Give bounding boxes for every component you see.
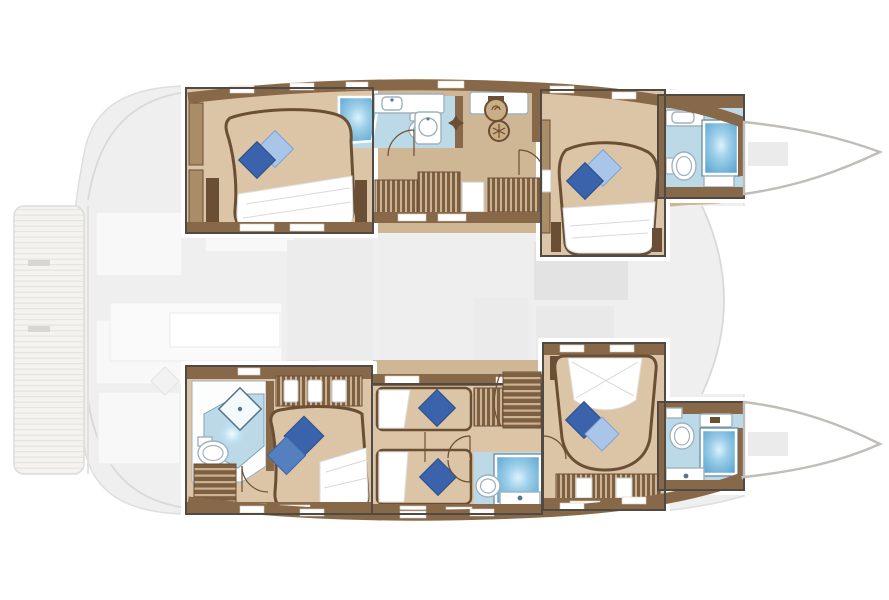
port-mid-bathroom	[337, 94, 463, 156]
hull-window	[610, 345, 634, 352]
wardrobe-panel	[189, 103, 203, 165]
shower	[704, 122, 738, 174]
nightstand	[551, 222, 561, 252]
galley-sink	[419, 118, 437, 136]
hull-window	[385, 376, 419, 384]
nightstand	[652, 228, 662, 252]
hanger	[332, 380, 346, 402]
anchor-locker-ghost	[748, 142, 788, 166]
faucet	[427, 118, 430, 121]
nightstand	[355, 180, 367, 222]
hanger	[284, 380, 298, 402]
catamaran-floor-plan	[0, 0, 889, 600]
hull-window	[560, 345, 584, 352]
ghost-cockpit-bench	[170, 313, 280, 347]
hull-window	[240, 224, 274, 231]
deck-hatch	[622, 497, 646, 504]
starboard-hull	[181, 338, 749, 519]
bed-linen	[563, 202, 655, 253]
deck-plan-canvas	[0, 0, 889, 600]
wardrobe-panel	[189, 170, 203, 224]
inner-wall	[186, 222, 373, 233]
porthole	[542, 170, 551, 192]
companionway-stairs	[418, 172, 460, 218]
deck-hatch	[612, 92, 636, 99]
bathroom-wall	[658, 187, 744, 198]
deck-hatch	[560, 503, 584, 510]
ghost-sideboard	[205, 238, 295, 252]
faucet	[518, 496, 523, 501]
cooktop-ring	[485, 99, 507, 121]
deck-hatch	[240, 506, 264, 513]
deck-hatch	[438, 81, 464, 88]
bed-linen	[379, 452, 408, 502]
ghost-cockpit-seat	[96, 212, 182, 276]
hull-window	[398, 214, 426, 221]
aft-starboard-cabin	[186, 366, 372, 514]
sink-basin	[710, 417, 720, 423]
nightstand	[206, 178, 219, 224]
locker-door	[576, 478, 592, 498]
anchor-locker-ghost	[748, 432, 788, 456]
platform-cleat	[28, 326, 50, 332]
hanger	[308, 380, 322, 402]
sink-basin	[672, 112, 694, 123]
locker-door	[462, 182, 484, 212]
ghost-cockpit-seat	[98, 392, 180, 464]
hull-window	[238, 368, 260, 375]
ghost-seat	[474, 298, 528, 360]
bed-linen	[379, 390, 410, 428]
locker-door	[616, 478, 632, 498]
fwd-starboard-cabin	[543, 343, 665, 510]
stairs	[503, 372, 541, 428]
platform-cleat	[28, 260, 50, 266]
toilet	[476, 475, 500, 497]
shelf	[666, 408, 682, 418]
shower	[702, 430, 736, 474]
faucet	[684, 474, 689, 479]
faucet	[390, 98, 393, 101]
bath-shelf	[704, 176, 734, 187]
wardrobe	[375, 180, 417, 213]
mid-bathroom	[474, 452, 542, 508]
foredeck-trampoline	[702, 206, 889, 394]
ghost-saloon-sofa	[287, 240, 373, 360]
wardrobe	[488, 178, 540, 212]
shower-drain	[238, 407, 242, 411]
hull-window	[438, 214, 466, 221]
hull-window	[290, 224, 324, 231]
stern-swim-platform	[14, 206, 84, 474]
wardrobe	[474, 388, 504, 426]
